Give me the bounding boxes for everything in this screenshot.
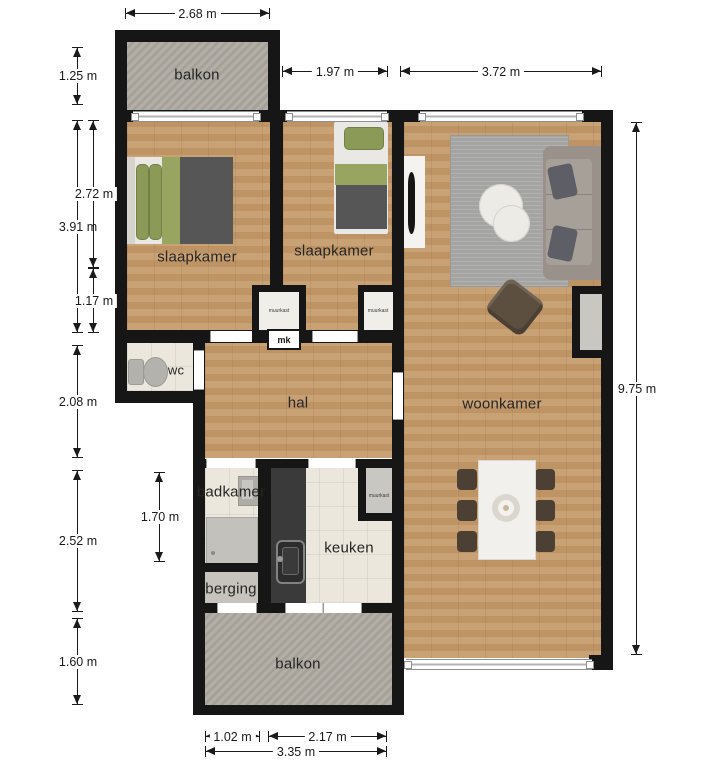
wall <box>193 563 271 572</box>
dimension-bedroom1-lower: 1.17 m <box>87 268 101 333</box>
dimension-total-height: 9.75 m <box>630 122 644 655</box>
room-label-living-room: woonkamer <box>462 396 541 413</box>
table-centerpiece-dot <box>503 505 509 511</box>
wall <box>268 30 280 110</box>
wall-closet-kitchen <box>366 468 392 513</box>
dimension-bathroom-inner: 1.70 m <box>153 472 167 562</box>
door-bedroom-middle <box>312 331 358 342</box>
room-label-bedroom-middle: slaapkamer <box>294 243 374 260</box>
door-toilet <box>194 350 204 390</box>
kitchen-faucet <box>277 556 283 562</box>
dining-chair <box>535 531 555 552</box>
door-living-room <box>393 372 403 420</box>
bed-pillow <box>136 164 149 240</box>
dimension-bedroom2-width: 1.97 m <box>282 65 388 79</box>
wall <box>115 30 127 110</box>
tv-icon <box>408 172 415 234</box>
bed-pillow <box>149 164 162 240</box>
bed-blanket <box>336 185 387 229</box>
dining-chair <box>535 469 555 490</box>
dimension-bath-storage-height: 2.52 m <box>71 470 85 612</box>
kitchen-closet-frame <box>358 513 404 521</box>
room-label-toilet: wc <box>168 363 184 378</box>
room-label-balcony-bottom: balkon <box>275 656 320 673</box>
dimension-balcony-bottom-height: 1.60 m <box>71 618 85 705</box>
wall <box>115 30 280 42</box>
shower <box>206 517 258 564</box>
room-label-hall: hal <box>288 395 309 412</box>
bed-duvet-band <box>162 157 180 244</box>
kitchen-sink-basin <box>282 547 299 575</box>
wall-closet-left-label: muurkast <box>269 308 290 314</box>
wall-closet-kitchen-label: muurkast <box>369 493 390 499</box>
bed-headboard <box>127 157 135 244</box>
wall <box>601 110 613 670</box>
door-storage-balcony <box>217 603 257 613</box>
wall-niche <box>580 294 602 350</box>
wall <box>193 705 404 715</box>
dimension-hall-height: 2.08 m <box>71 345 85 458</box>
coffee-table <box>493 205 530 242</box>
bed-blanket <box>180 157 233 244</box>
door-kitchen-balcony <box>285 603 362 613</box>
wall <box>193 343 205 715</box>
bed-duvet-band <box>335 164 387 185</box>
shower-drain <box>211 551 215 555</box>
window-living-top <box>420 111 582 122</box>
dimension-storage-width: 1.02 m <box>205 730 260 744</box>
toilet-icon <box>143 357 168 387</box>
meter-cabinet: mk <box>267 329 301 350</box>
dining-chair <box>457 531 477 552</box>
wall <box>115 122 127 403</box>
dimension-balcony-bottom-width: 3.35 m <box>205 745 387 759</box>
dimension-balcony-depth: 1.25 m <box>71 47 85 105</box>
door-bedroom-left <box>210 331 254 342</box>
window-bedroom-middle <box>287 111 387 122</box>
dining-chair <box>457 469 477 490</box>
room-label-storage: berging <box>205 581 256 598</box>
room-label-bedroom-left: slaapkamer <box>157 249 237 266</box>
dimension-kitchen-width: 2.17 m <box>268 730 387 744</box>
bed-pillow <box>344 127 384 150</box>
door-bathroom <box>206 459 256 468</box>
dimension-bedroom1-upper: 2.72 m <box>87 120 101 268</box>
room-label-kitchen: keuken <box>324 540 374 557</box>
room-label-bathroom: badkamer <box>197 484 265 501</box>
dining-chair <box>457 500 477 521</box>
wall <box>115 391 205 403</box>
window-living-bottom <box>406 659 592 670</box>
door-kitchen <box>308 459 356 468</box>
dimension-living-width: 3.72 m <box>400 65 602 79</box>
room-label-balcony-top: balkon <box>174 67 219 84</box>
floorplan: muurkast mk muurkast muurkast balkon sla… <box>0 0 708 768</box>
wall-closet-right-label: muurkast <box>368 308 389 314</box>
dimension-balcony-width: 2.68 m <box>125 7 270 21</box>
dining-chair <box>535 500 555 521</box>
window-balcony-bedroom <box>133 111 259 122</box>
meter-cabinet-label: mk <box>277 335 290 345</box>
washbasin <box>128 359 144 385</box>
